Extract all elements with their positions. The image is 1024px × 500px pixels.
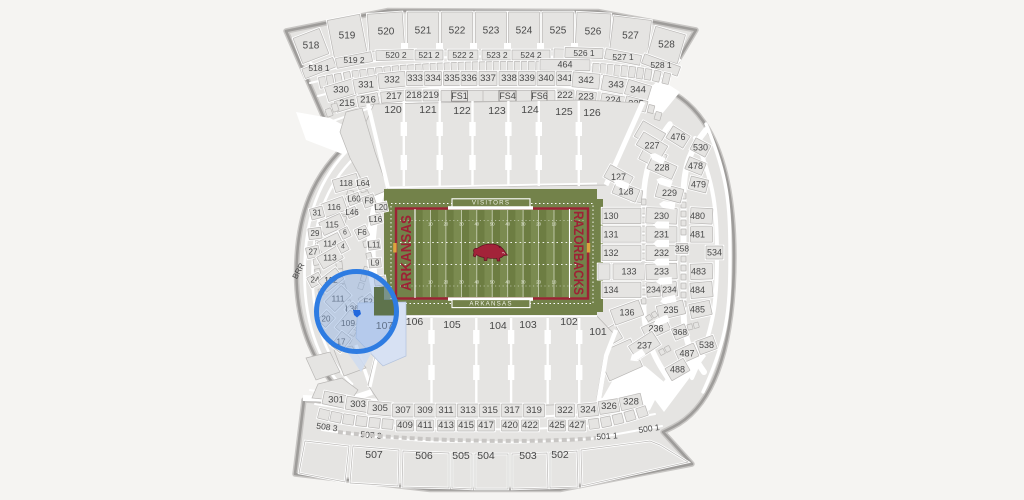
svg-text:230: 230 [654,211,669,221]
svg-text:227: 227 [644,141,659,151]
svg-text:488: 488 [670,365,685,375]
svg-text:L60: L60 [347,195,361,204]
svg-text:417: 417 [478,420,494,431]
svg-text:RAZORBACKS: RAZORBACKS [571,211,586,295]
svg-text:132: 132 [603,248,618,258]
svg-text:30: 30 [459,222,464,227]
svg-text:501 1: 501 1 [596,430,618,441]
svg-text:480: 480 [690,211,705,221]
svg-text:113: 113 [323,253,337,263]
svg-text:484: 484 [690,285,705,295]
svg-text:507: 507 [365,449,383,461]
svg-text:534: 534 [707,248,722,258]
svg-text:219: 219 [423,90,439,101]
svg-text:133: 133 [621,267,636,277]
svg-text:478: 478 [688,161,703,171]
svg-text:425: 425 [549,420,565,431]
svg-text:216: 216 [360,95,376,106]
svg-text:503: 503 [519,450,537,462]
svg-text:30: 30 [521,280,526,285]
svg-text:358: 358 [675,244,689,254]
svg-text:20: 20 [536,280,541,285]
svg-text:103: 103 [519,319,537,331]
svg-text:217: 217 [386,91,402,102]
svg-text:522 2: 522 2 [452,50,474,60]
svg-text:F8: F8 [364,197,374,206]
svg-text:ARKANSAS: ARKANSAS [398,215,415,291]
svg-text:134: 134 [603,285,618,295]
svg-text:518 1: 518 1 [308,63,330,73]
svg-text:130: 130 [603,211,618,221]
svg-text:50: 50 [490,222,495,227]
svg-text:330: 330 [333,85,349,96]
svg-text:30: 30 [521,222,526,227]
svg-text:20: 20 [444,280,449,285]
svg-text:6: 6 [343,230,347,237]
svg-text:L64: L64 [356,179,370,188]
svg-text:116: 116 [327,202,341,212]
svg-text:519: 519 [339,31,356,42]
svg-text:526 1: 526 1 [573,48,595,58]
svg-text:215: 215 [339,98,355,109]
svg-text:487: 487 [679,349,694,359]
svg-text:317: 317 [504,405,520,416]
svg-text:10: 10 [428,280,433,285]
svg-text:538: 538 [699,340,714,350]
svg-text:422: 422 [522,420,538,431]
svg-text:485: 485 [690,305,705,315]
svg-text:479: 479 [691,180,706,190]
svg-text:476: 476 [670,132,685,142]
svg-text:234: 234 [662,285,676,295]
svg-text:10: 10 [552,222,557,227]
svg-text:L46: L46 [345,208,359,217]
svg-text:104: 104 [489,320,507,332]
svg-text:10: 10 [428,222,433,227]
svg-text:326: 326 [601,401,617,412]
svg-text:324: 324 [580,405,596,416]
svg-text:481: 481 [690,229,705,239]
svg-text:319: 319 [526,405,542,416]
svg-text:328: 328 [623,397,639,408]
svg-text:L9: L9 [371,259,380,268]
svg-text:VISITORS: VISITORS [472,200,510,207]
svg-text:233: 233 [654,267,669,277]
svg-text:126: 126 [583,107,601,119]
svg-text:504: 504 [477,450,495,462]
svg-text:523: 523 [483,26,500,37]
svg-text:335: 335 [444,73,460,84]
svg-text:40: 40 [505,222,510,227]
svg-text:313: 313 [460,405,476,416]
svg-text:40: 40 [474,280,479,285]
svg-text:307: 307 [395,405,411,416]
svg-text:136: 136 [619,308,634,318]
svg-text:525: 525 [550,26,567,37]
svg-text:420: 420 [502,420,518,431]
svg-text:409: 409 [397,420,413,431]
svg-text:332: 332 [384,75,400,86]
svg-text:231: 231 [654,229,669,239]
svg-text:FS4: FS4 [499,91,516,101]
svg-text:131: 131 [603,229,618,239]
svg-text:4: 4 [341,244,345,251]
svg-text:502: 502 [551,449,569,461]
svg-text:ARKANSAS: ARKANSAS [469,301,512,308]
svg-text:518: 518 [303,41,320,52]
svg-text:232: 232 [654,248,669,258]
svg-text:30: 30 [459,280,464,285]
svg-text:31: 31 [313,209,322,218]
svg-text:125: 125 [555,106,573,118]
svg-text:L11: L11 [368,241,381,250]
svg-text:124: 124 [521,104,539,116]
svg-text:521: 521 [415,26,432,37]
svg-text:339: 339 [519,73,535,84]
svg-text:520 2: 520 2 [385,50,407,60]
svg-text:527: 527 [622,31,639,42]
svg-text:526: 526 [585,27,602,38]
svg-text:413: 413 [438,420,454,431]
svg-text:483: 483 [691,267,706,277]
svg-text:340: 340 [538,73,554,84]
svg-text:524 2: 524 2 [520,50,542,60]
svg-text:522: 522 [449,26,466,37]
svg-text:234: 234 [646,285,660,295]
svg-text:336: 336 [461,73,477,84]
svg-text:506: 506 [415,450,433,462]
svg-text:F6: F6 [357,228,367,237]
svg-text:222: 222 [557,90,573,101]
svg-text:40: 40 [474,222,479,227]
svg-text:415: 415 [458,420,474,431]
svg-text:50: 50 [490,280,495,285]
svg-text:315: 315 [482,405,498,416]
svg-text:20: 20 [536,222,541,227]
svg-text:122: 122 [453,105,471,117]
svg-text:309: 309 [417,405,433,416]
svg-text:337: 337 [480,73,496,84]
svg-text:338: 338 [501,73,517,84]
svg-text:L16: L16 [369,215,383,224]
svg-text:333: 333 [407,73,423,84]
svg-text:342: 342 [578,75,594,86]
svg-text:520: 520 [378,27,395,38]
svg-text:27: 27 [309,248,318,257]
svg-text:29: 29 [311,229,320,238]
svg-text:368: 368 [673,327,687,337]
svg-text:237: 237 [637,341,652,351]
svg-text:40: 40 [505,280,510,285]
svg-text:229: 229 [662,188,677,198]
svg-text:505: 505 [452,450,470,462]
svg-text:118: 118 [339,178,353,188]
svg-text:521 2: 521 2 [418,50,440,60]
svg-text:344: 344 [630,85,646,96]
svg-text:20: 20 [444,222,449,227]
svg-text:123: 123 [488,105,506,117]
svg-text:523 2: 523 2 [486,50,508,60]
svg-text:519 2: 519 2 [343,55,365,65]
svg-text:311: 311 [438,405,453,416]
svg-text:411: 411 [417,420,432,431]
svg-text:343: 343 [608,80,624,91]
svg-text:115: 115 [325,220,339,230]
svg-text:528: 528 [658,40,675,51]
svg-text:105: 105 [443,319,461,331]
svg-text:FS1: FS1 [451,91,468,101]
svg-text:235: 235 [663,305,678,315]
svg-text:120: 120 [384,104,402,116]
svg-text:530: 530 [693,143,708,153]
svg-text:322: 322 [557,405,573,416]
svg-text:331: 331 [358,80,374,91]
svg-text:527 1: 527 1 [612,52,634,62]
svg-text:FS6: FS6 [531,91,548,101]
svg-text:427: 427 [569,420,585,431]
svg-text:301: 301 [328,395,344,406]
svg-text:464: 464 [557,60,572,70]
svg-text:101: 101 [589,326,607,338]
svg-text:102: 102 [560,316,578,328]
svg-text:121: 121 [419,104,437,116]
svg-text:341: 341 [557,73,573,84]
svg-text:303: 303 [350,399,366,410]
svg-text:524: 524 [516,26,533,37]
svg-text:305: 305 [372,403,388,414]
svg-text:218: 218 [406,90,422,101]
svg-text:L20: L20 [374,203,388,212]
svg-text:10: 10 [552,280,557,285]
svg-text:528 1: 528 1 [650,60,672,70]
svg-text:334: 334 [425,73,441,84]
